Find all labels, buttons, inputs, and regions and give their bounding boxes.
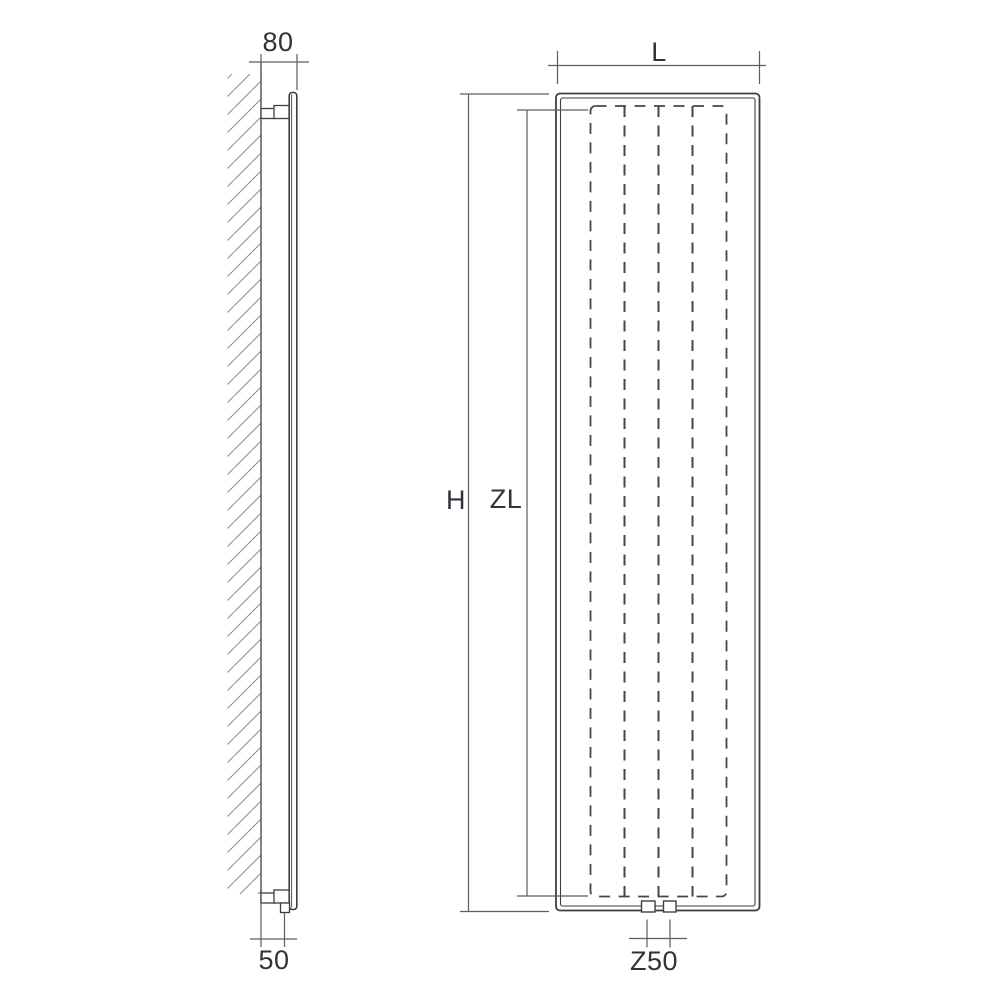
dim-ZL-label: ZL (490, 484, 523, 514)
front-view: L H ZL Z50 (446, 37, 766, 976)
dimension-50: 50 (250, 903, 297, 975)
bottom-bracket-step (261, 893, 276, 903)
radiator-dimension-diagram: 80 50 L (0, 0, 1000, 1000)
top-bracket (261, 106, 289, 119)
bottom-bracket-body (274, 890, 289, 903)
dim-L-label: L (651, 37, 667, 67)
dim-80-label: 80 (262, 27, 293, 57)
panel-side-profile (289, 93, 297, 910)
top-bracket-body (274, 106, 289, 119)
dim-Z50-label: Z50 (630, 946, 678, 976)
side-view: 80 50 (228, 27, 310, 975)
bottom-foot (281, 903, 290, 913)
top-bracket-step (261, 109, 276, 119)
connection-nipple-left (642, 901, 656, 912)
technical-drawing-canvas: 80 50 L (0, 0, 1000, 1000)
connection-nipple-right (664, 901, 677, 912)
dimension-L: L (548, 37, 766, 84)
dim-50-label: 50 (258, 945, 289, 975)
dim-H-label: H (446, 485, 466, 515)
bottom-bracket (261, 890, 289, 903)
dimension-Z50: Z50 (629, 920, 687, 977)
wall-hatching (228, 74, 262, 894)
